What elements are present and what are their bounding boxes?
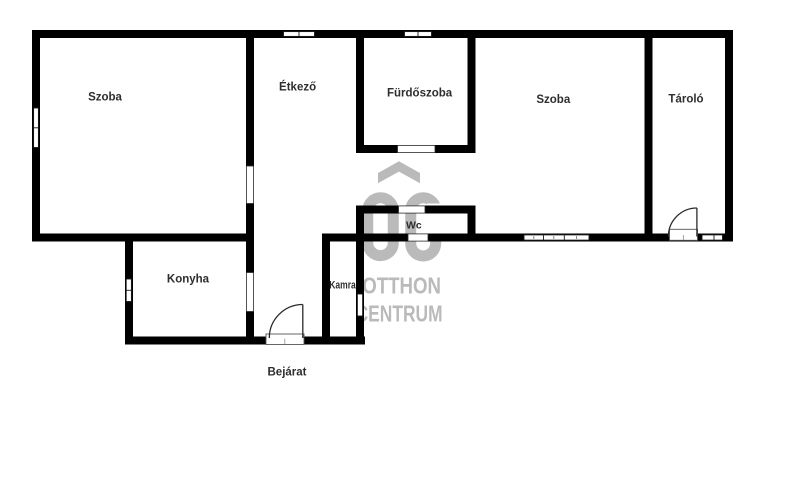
- svg-text:Bejárat: Bejárat: [268, 366, 307, 378]
- svg-text:Tároló: Tároló: [668, 93, 703, 105]
- svg-text:Szoba: Szoba: [536, 94, 570, 106]
- svg-text:Konyha: Konyha: [167, 274, 210, 286]
- svg-text:Étkező: Étkező: [279, 80, 316, 93]
- svg-text:OTTHON: OTTHON: [362, 272, 441, 298]
- svg-text:Fürdőszoba: Fürdőszoba: [387, 88, 453, 100]
- svg-text:Wc: Wc: [406, 219, 422, 231]
- svg-text:Szoba: Szoba: [88, 92, 122, 104]
- svg-text:CENTRUM: CENTRUM: [356, 301, 443, 327]
- svg-text:Kamra: Kamra: [329, 279, 356, 291]
